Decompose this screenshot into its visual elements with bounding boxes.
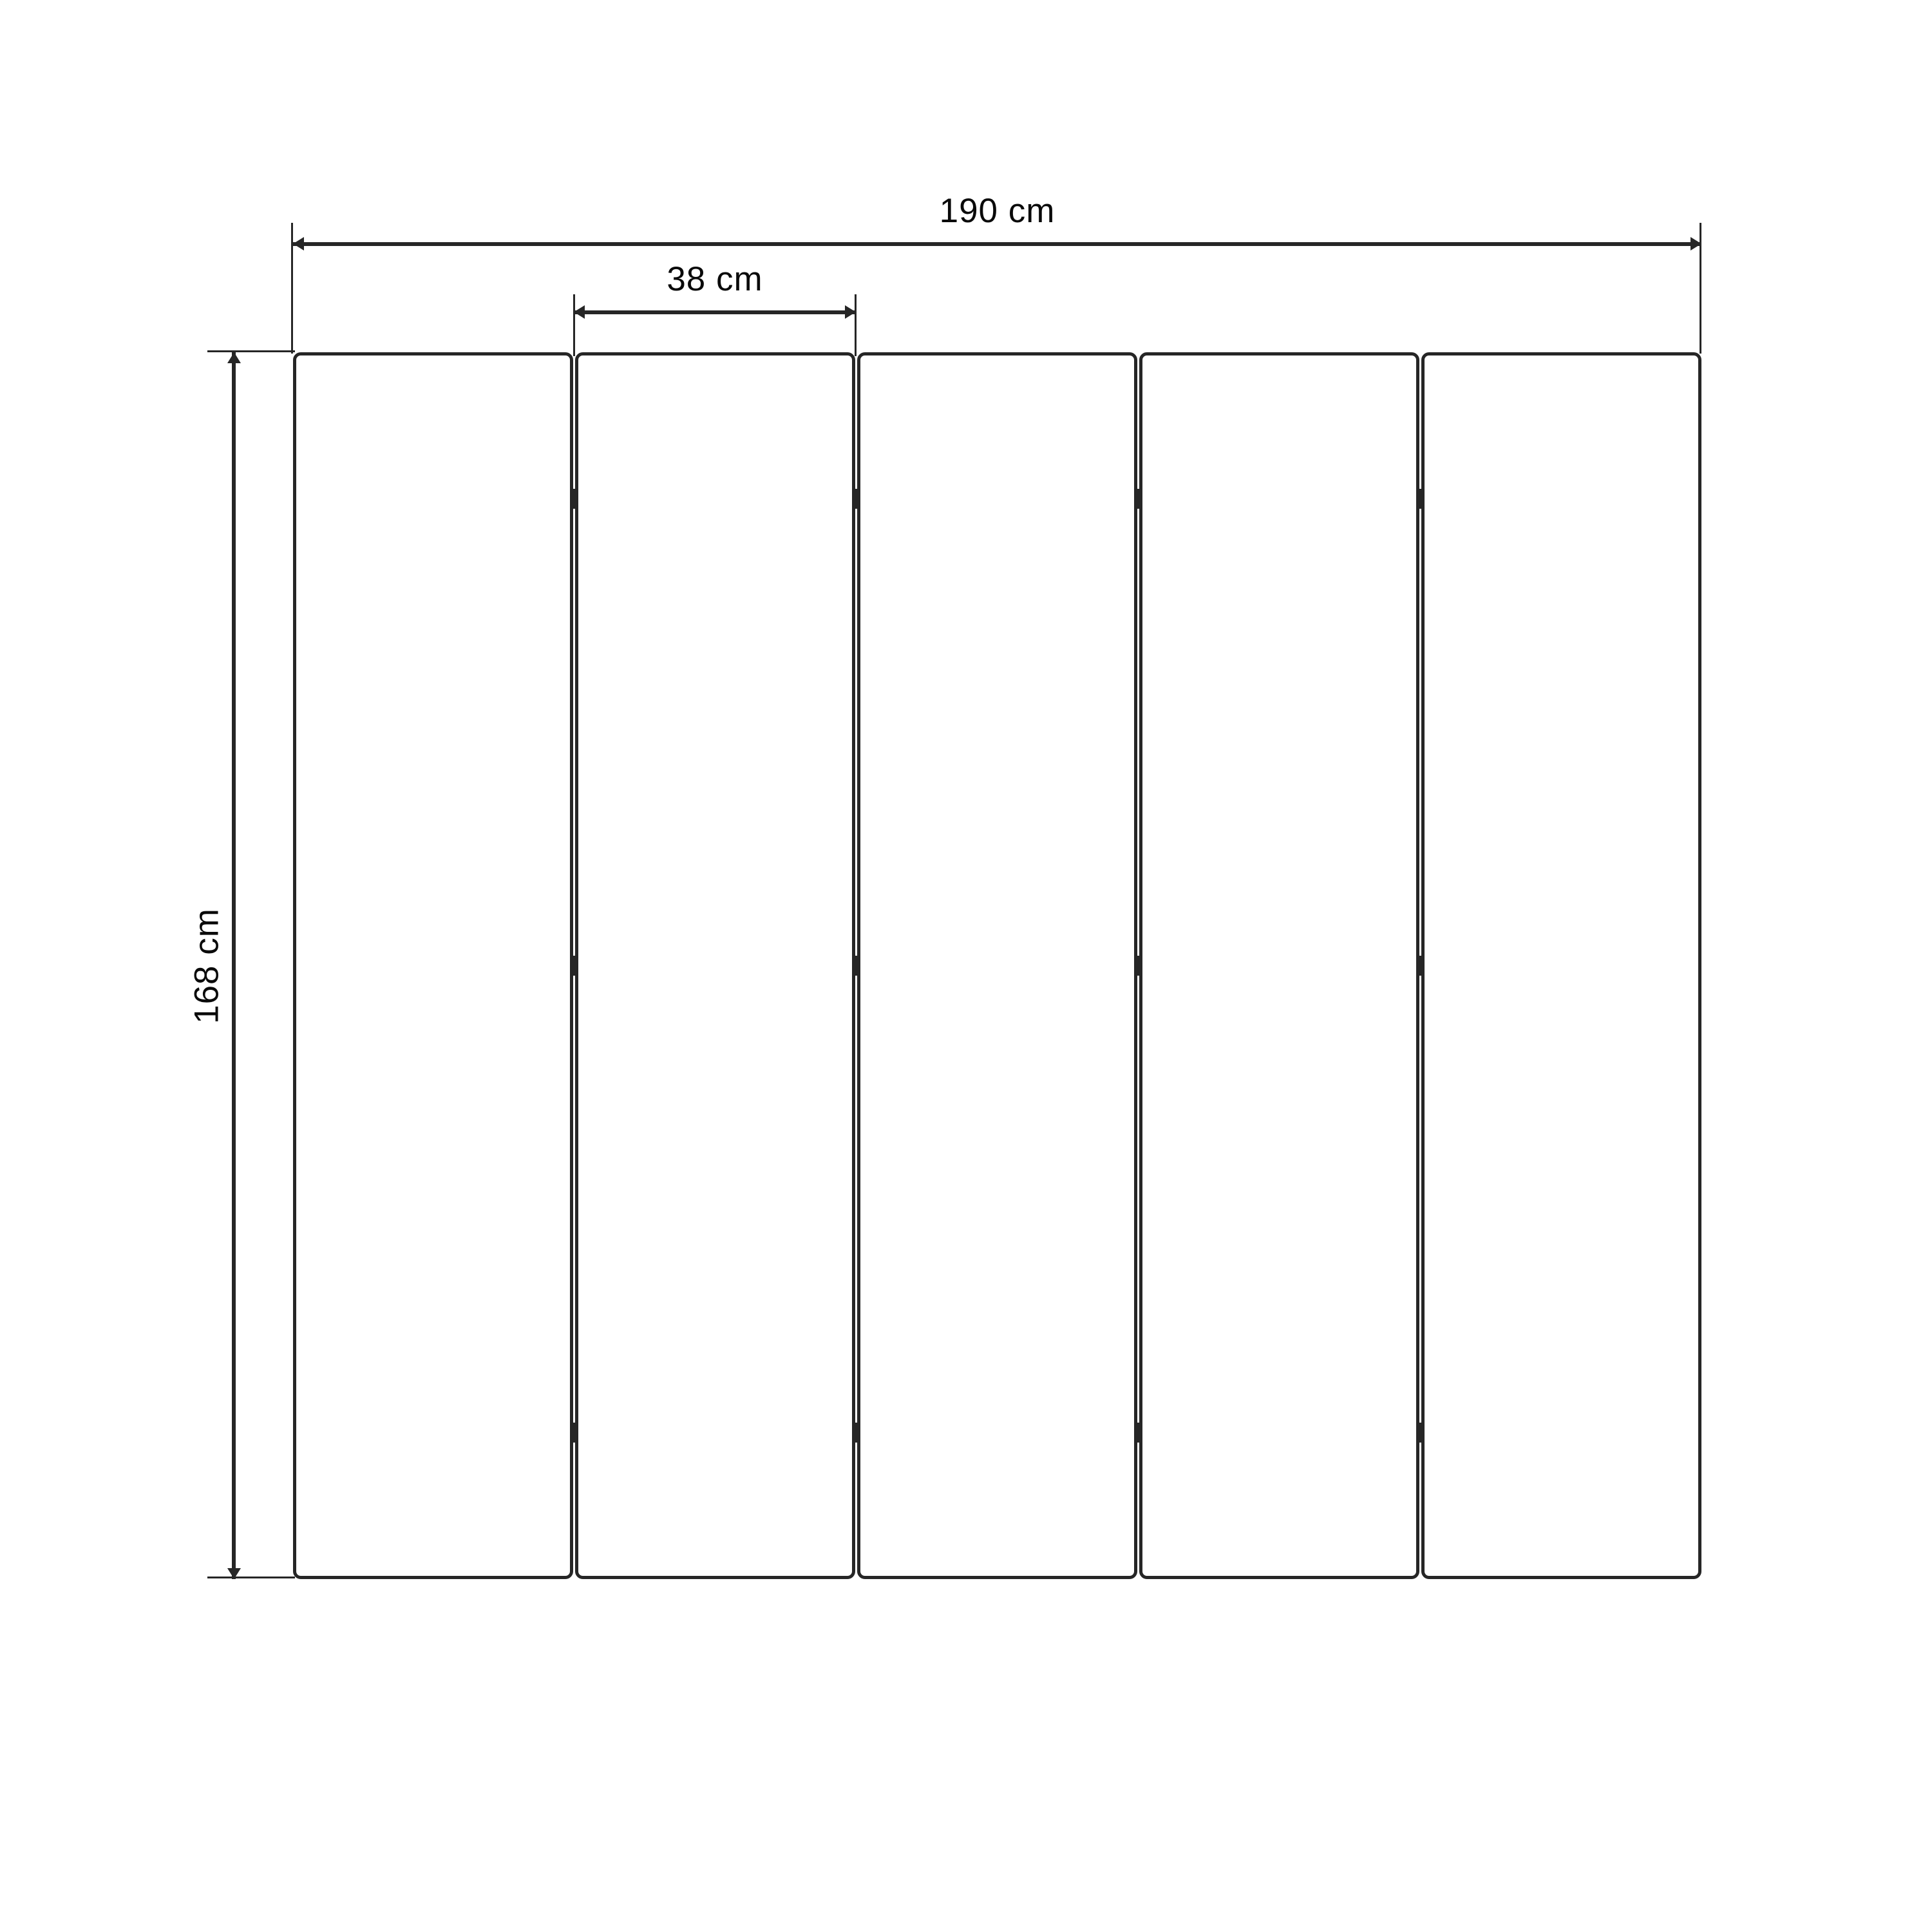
hinge-mark [852,1423,860,1443]
panel-1 [293,352,573,1579]
hinge-mark [570,1423,578,1443]
panel-2 [575,352,855,1579]
hinge-mark [570,956,578,976]
panel-width-dimension-label: 38 cm [574,260,856,299]
height-dimension-label: 168 cm [188,908,227,1024]
panel-4 [1139,352,1419,1579]
hinge-mark [852,956,860,976]
total-width-extension-line-left [291,223,293,354]
hinge-mark [1416,1423,1425,1443]
hinge-mark [1416,489,1425,509]
panel-3 [857,352,1137,1579]
height-dimension-line [232,352,236,1579]
height-extension-line-top [207,350,295,352]
panel-width-arrowhead-left [574,305,585,319]
height-arrowhead-top [227,352,241,363]
panel-width-extension-line-right [855,294,857,356]
dimension-diagram: 190 cm 38 cm 168 cm [0,0,1932,1932]
total-width-arrowhead-left [293,237,304,251]
total-width-extension-line-right [1700,223,1701,354]
height-extension-line-bottom [207,1577,295,1578]
hinge-mark [1416,956,1425,976]
total-width-dimension-label: 190 cm [293,192,1701,231]
hinge-mark [1134,1423,1142,1443]
panel-5 [1421,352,1701,1579]
panel-width-dimension-line [574,310,856,314]
hinge-mark [1134,489,1142,509]
hinge-mark [852,489,860,509]
panel-row [293,352,1701,1579]
panel-width-extension-line-left [573,294,575,356]
total-width-dimension-line [293,242,1701,246]
hinge-mark [1134,956,1142,976]
hinge-mark [570,489,578,509]
